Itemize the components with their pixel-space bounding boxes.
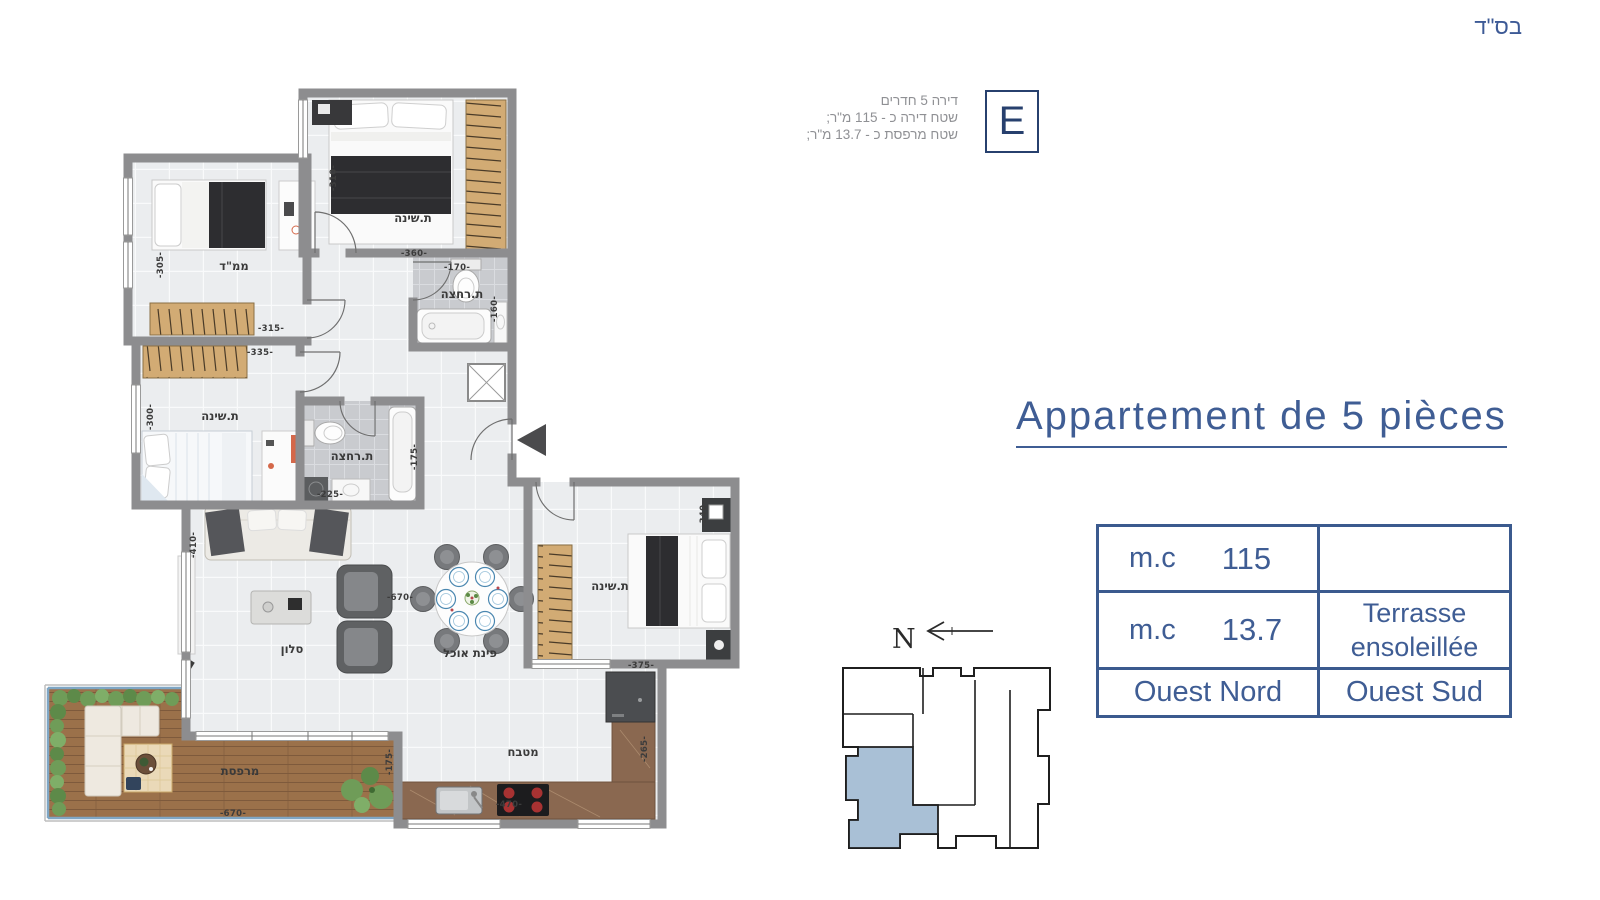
closet-bedroom-top xyxy=(466,100,506,250)
entry-arrow-icon xyxy=(517,424,546,456)
keyplan-building xyxy=(843,668,1050,848)
closet-mamad xyxy=(150,303,254,335)
spec-area-value: 115 xyxy=(1222,541,1271,577)
page-title: Appartement de 5 pièces xyxy=(1016,394,1507,448)
closet-bedroom-master xyxy=(538,545,572,667)
dim-salon-h: -410- xyxy=(189,532,199,558)
room-label-bedroom-left: ת.שינה xyxy=(201,409,238,423)
dim-kitchen-h: -265- xyxy=(640,736,650,762)
dim-bedroom-left-h: -300- xyxy=(146,404,156,430)
spec-cell-orientation-left: Ouest Nord xyxy=(1099,670,1320,715)
dim-bedroom-master-w: -375- xyxy=(628,661,654,671)
room-label-bath-top: ת.רחצה xyxy=(441,287,483,301)
spec-orientation-left: Ouest Nord xyxy=(1134,676,1282,709)
dim-mamad-h: -305- xyxy=(156,252,166,278)
spec-cell-area: m.c 115 xyxy=(1099,527,1320,593)
bed-mamad xyxy=(152,180,266,250)
bed-bedroom-master xyxy=(628,534,730,628)
spec-terrace-note: Terrasse ensoleillée xyxy=(1320,596,1509,664)
room-label-kitchen: מטבח xyxy=(507,745,538,759)
salon-sofa xyxy=(205,506,351,560)
fridge xyxy=(606,672,655,722)
spec-cell-orientation-right: Ouest Sud xyxy=(1320,670,1509,715)
dim-kitchen-w: -470- xyxy=(496,800,522,810)
floor-plan: ת.שינה ממ"ד ת.רחצה ת.שינה ת.רחצה סלון פי… xyxy=(40,85,750,835)
dresser-bedroom-left xyxy=(262,431,299,501)
dim-bath-top-h: -160- xyxy=(490,296,500,322)
spec-cell-terrace-area: m.c 13.7 xyxy=(1099,593,1320,670)
dim-mamad-w: -315- xyxy=(258,324,284,334)
room-label-mamad: ממ"ד xyxy=(219,259,248,273)
spec-orientation-right: Ouest Sud xyxy=(1346,676,1483,709)
compass-north-label: N xyxy=(892,624,916,655)
dim-terrace-h: -175- xyxy=(385,749,395,775)
compass-arrow-icon xyxy=(928,622,993,640)
closet-bedroom-left xyxy=(143,346,247,378)
dim-bath-mid-h: -175- xyxy=(410,444,420,470)
room-label-bedroom-top: ת.שינה xyxy=(394,211,431,225)
dim-bath-top-w: -170- xyxy=(444,263,470,273)
unit-info-line1: דירה 5 חדרים xyxy=(806,92,958,109)
room-label-terrace: מרפסת xyxy=(221,764,259,778)
room-label-dining: פינת אוכל xyxy=(443,646,497,660)
unit-info-line3: שטח מרפסת כ - 13.7 מ"ר; xyxy=(806,126,958,143)
terrace-rug-table xyxy=(124,744,172,792)
unit-info-line2: שטח דירה כ - 115 מ"ר; xyxy=(806,109,958,126)
bed-bedroom-left xyxy=(142,431,252,503)
bsd-label: בס"ד xyxy=(1474,14,1522,40)
spec-area-unit: m.c xyxy=(1129,542,1176,575)
dim-bedroom-top-w: -360- xyxy=(401,249,427,259)
coffee-table xyxy=(251,591,311,624)
spec-terrace-value: 13.7 xyxy=(1222,612,1282,648)
dim-bedroom-master-h: -340- xyxy=(699,501,709,527)
spec-cell-empty xyxy=(1320,527,1509,593)
room-label-salon: סלון xyxy=(281,642,304,656)
dim-bedroom-left-w: -335- xyxy=(247,348,273,358)
unit-info-block: דירה 5 חדרים שטח דירה כ - 115 מ"ר; שטח מ… xyxy=(806,92,958,143)
unit-letter-badge: E xyxy=(985,90,1039,153)
service-shaft xyxy=(468,364,505,401)
spec-terrace-unit: m.c xyxy=(1129,614,1176,647)
keyplan: N xyxy=(828,600,1055,862)
dim-bedroom-top-h: -310- xyxy=(329,165,339,191)
room-label-bath-mid: ת.רחצה xyxy=(331,449,373,463)
spec-cell-terrace-note: Terrasse ensoleillée xyxy=(1320,593,1509,670)
dim-terrace-w: -670- xyxy=(220,809,246,819)
dim-salon-w: -670- xyxy=(387,593,413,603)
room-label-bedroom-master: ת.שינה xyxy=(591,579,628,593)
spec-table: m.c 115 m.c 13.7 Terrasse ensoleillée Ou… xyxy=(1096,524,1512,718)
dim-bath-mid-w: -225- xyxy=(317,490,343,500)
